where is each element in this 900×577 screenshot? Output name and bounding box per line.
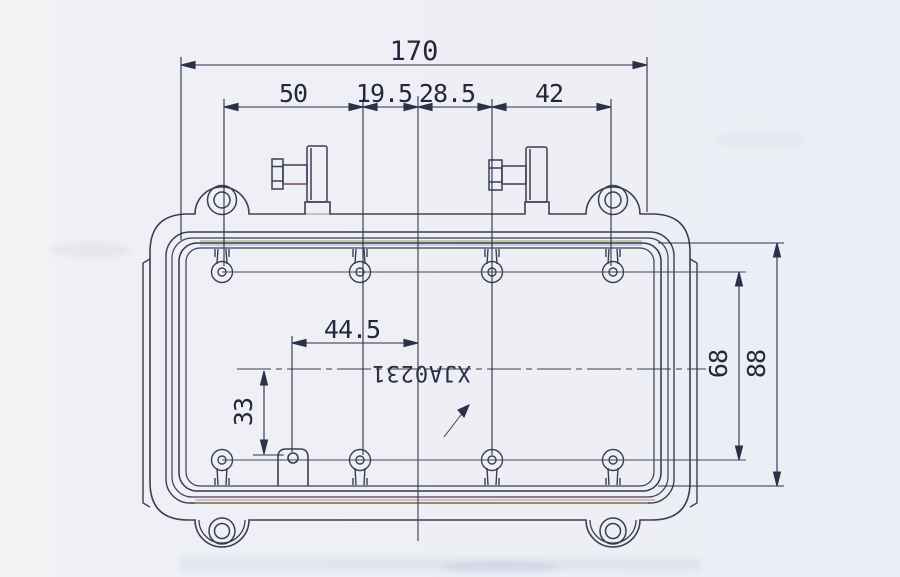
surface-leader-arrow bbox=[444, 405, 469, 437]
gland-disc bbox=[526, 147, 547, 202]
mounting-lug-bottom-right bbox=[600, 518, 626, 544]
screw-boss bbox=[350, 450, 371, 486]
technical-drawing: 170 50 19.5 28.5 42 44.5 33 68 88 XJA023… bbox=[0, 0, 900, 577]
dim-label-top-spacing-1: 50 bbox=[279, 79, 307, 108]
dim-label-boss-offset-y: 33 bbox=[229, 398, 258, 426]
mounting-lug-top-right bbox=[599, 186, 628, 215]
scanned-drawing-sheet: 170 50 19.5 28.5 42 44.5 33 68 88 XJA023… bbox=[0, 0, 900, 577]
mounting-lug-top-left bbox=[208, 186, 237, 215]
screw-boss bbox=[350, 249, 371, 283]
cable-gland-right bbox=[489, 147, 547, 202]
dim-label-opening-height: 88 bbox=[742, 350, 771, 378]
dim-label-top-spacing-3: 28.5 bbox=[419, 79, 475, 108]
part-number-label: XJA0231 bbox=[371, 360, 471, 385]
gland-head bbox=[489, 160, 502, 190]
dim-total-width bbox=[181, 57, 647, 240]
dim-label-top-spacing-2: 19.5 bbox=[356, 79, 412, 108]
screw-boss bbox=[212, 249, 233, 283]
gland-head bbox=[272, 159, 283, 189]
gland-stem bbox=[283, 165, 307, 184]
mounting-lug-bottom-left bbox=[209, 518, 235, 544]
dim-label-total-width: 170 bbox=[390, 36, 439, 67]
dim-label-top-spacing-4: 42 bbox=[535, 79, 563, 108]
dim-boss-offset-x bbox=[292, 336, 418, 452]
screw-boss bbox=[603, 249, 624, 283]
gland-disc bbox=[307, 146, 327, 202]
gland-stem bbox=[502, 166, 526, 184]
dim-label-hole-row-spacing: 68 bbox=[704, 350, 733, 378]
screw-boss bbox=[603, 450, 624, 486]
cable-gland-left bbox=[272, 146, 327, 202]
screw-boss bbox=[212, 450, 233, 486]
dim-label-boss-offset-x: 44.5 bbox=[324, 315, 380, 344]
